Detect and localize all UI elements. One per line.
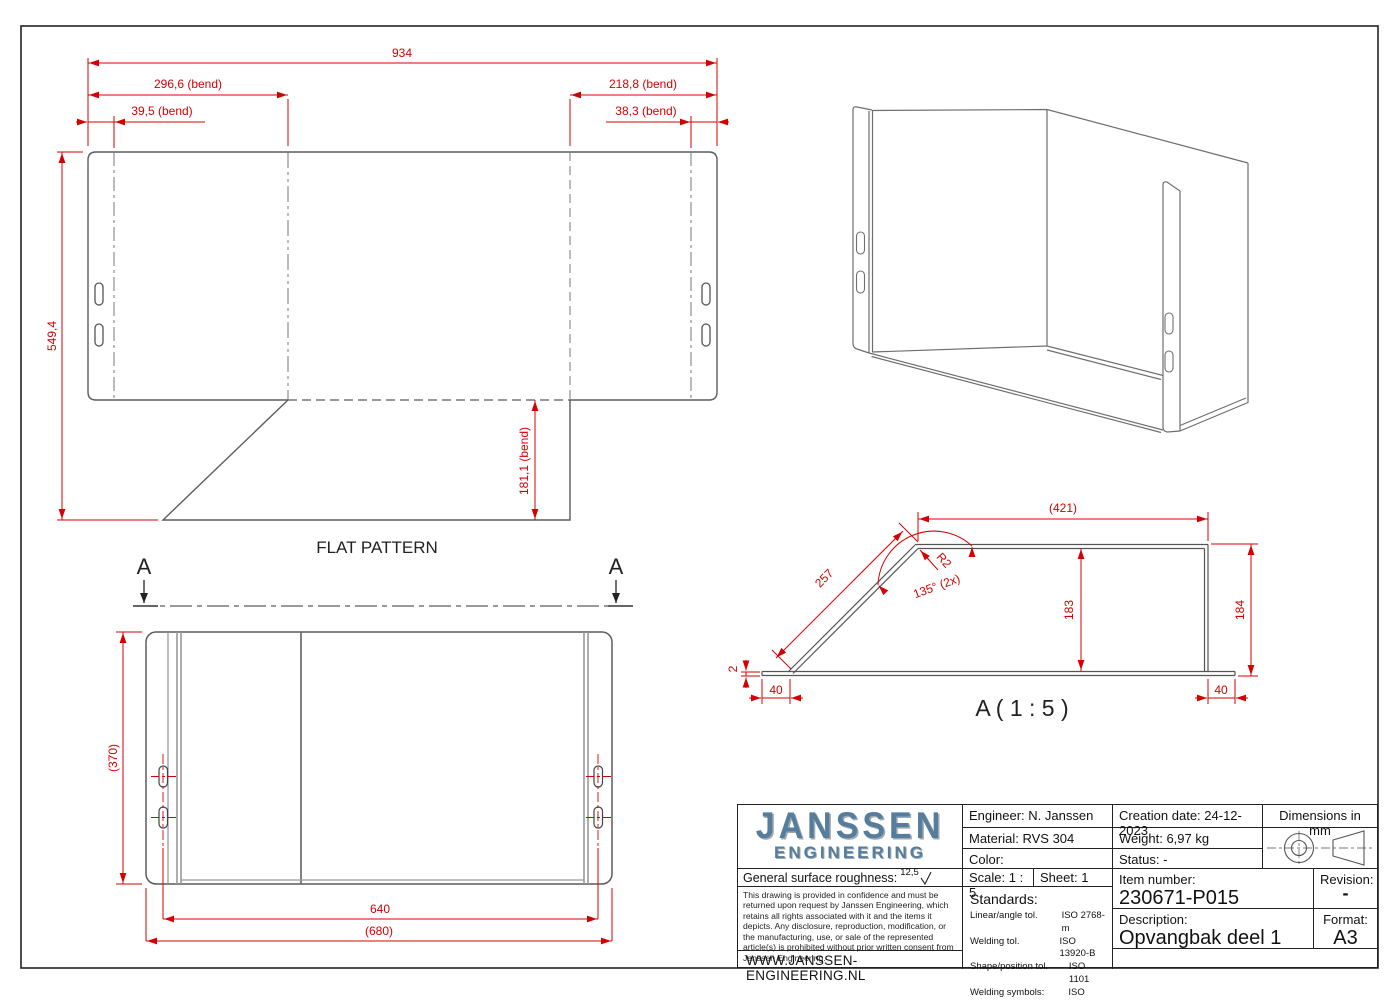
standard-name: Welding tol. [970, 936, 1059, 962]
website: WWW.JANSSEN-ENGINEERING.NL [738, 951, 963, 969]
dimensions-note: Dimensions in mm [1263, 805, 1377, 828]
surface-roughness-row: General surface roughness: 12,5 [738, 869, 963, 887]
dim-bend-left-1: 296,6 (bend) [154, 77, 222, 91]
standard-name: Linear/angle tol. [970, 910, 1062, 936]
description-label: Description: [1113, 909, 1313, 927]
weight-field: Weight: 6,97 kg [1113, 828, 1263, 849]
title-block: JANSSEN ENGINEERING General surface roug… [737, 804, 1378, 968]
creation-date-field: Creation date: 24-12-2023 [1113, 805, 1263, 828]
dim-outer-height: 184 [1233, 600, 1247, 620]
dim-bend-right-1: 218,8 (bend) [609, 77, 677, 91]
revision-box: Revision: - [1314, 869, 1377, 909]
surface-roughness-icon [920, 871, 934, 886]
standard-row: Shape/position tol. ISO 1101 [963, 961, 1112, 987]
standard-value: ISO 13920-B [1059, 936, 1105, 962]
dim-thickness: 2 [726, 665, 740, 672]
dim-bend-left-2: 39,5 (bend) [131, 104, 192, 118]
drawing-sheet: 934 296,6 (bend) 218,8 (bend) 39,5 (bend… [0, 0, 1400, 1000]
format-value: A3 [1314, 927, 1377, 950]
status-field: Status: - [1113, 849, 1263, 869]
item-number-box: Item number: 230671-P015 [1113, 869, 1314, 909]
legal-notice: This drawing is provided in confidence a… [738, 887, 963, 951]
logo-line1: JANSSEN [756, 809, 945, 844]
section-view-label: A ( 1 : 5 ) [975, 695, 1068, 721]
standard-row: Welding tol. ISO 13920-B [963, 936, 1112, 962]
dim-top-width: (421) [1049, 501, 1077, 515]
standard-value: ISO 2768-m [1062, 910, 1105, 936]
dim-outer-width: (680) [365, 924, 393, 938]
standard-row: Linear/angle tol. ISO 2768-m [963, 910, 1112, 936]
standard-name: Welding symbols: [970, 987, 1068, 1000]
description-box: Description: Opvangbak deel 1 [1113, 909, 1314, 949]
dim-depth: (370) [106, 744, 120, 772]
standard-value: ISO 2553 [1068, 987, 1105, 1000]
standard-name: Shape/position tol. [970, 961, 1069, 987]
section-marker-left: A [137, 554, 152, 579]
format-box: Format: A3 [1314, 909, 1377, 949]
company-logo: JANSSEN ENGINEERING [738, 805, 963, 869]
dim-flange-left: 40 [769, 683, 783, 697]
standard-value: ISO 1101 [1069, 961, 1105, 987]
material-field: Material: RVS 304 [963, 828, 1113, 849]
section-marker-right: A [609, 554, 624, 579]
standards-box: Standards: Linear/angle tol. ISO 2768-m … [963, 887, 1113, 969]
dim-flange-right: 40 [1214, 683, 1228, 697]
projection-symbol [1263, 828, 1377, 869]
item-number-label: Item number: [1113, 869, 1313, 887]
color-field: Color: [963, 849, 1113, 869]
flat-pattern-label: FLAT PATTERN [316, 538, 438, 557]
first-angle-projection-icon [1263, 828, 1377, 869]
roughness-value: 12,5 [900, 867, 919, 878]
revision-value: - [1314, 887, 1377, 900]
roughness-label: General surface roughness: [743, 871, 897, 885]
dim-flap-bend: 181,1 (bend) [517, 427, 531, 495]
dim-slot-span: 640 [370, 902, 390, 916]
scale-field: Scale: 1 : 5 [963, 869, 1034, 887]
dim-overall-height: 549,4 [45, 321, 59, 351]
empty-cell [1113, 949, 1377, 969]
dim-bend-right-2: 38,3 (bend) [615, 104, 676, 118]
engineer-field: Engineer: N. Janssen [963, 805, 1113, 828]
dim-overall-width: 934 [392, 46, 412, 60]
format-label: Format: [1314, 909, 1377, 927]
sheet-field: Sheet: 1 [1034, 869, 1113, 887]
standards-label: Standards: [963, 887, 1112, 910]
standard-row: Welding symbols: ISO 2553 [963, 987, 1112, 1000]
dim-inner-height: 183 [1062, 600, 1076, 620]
